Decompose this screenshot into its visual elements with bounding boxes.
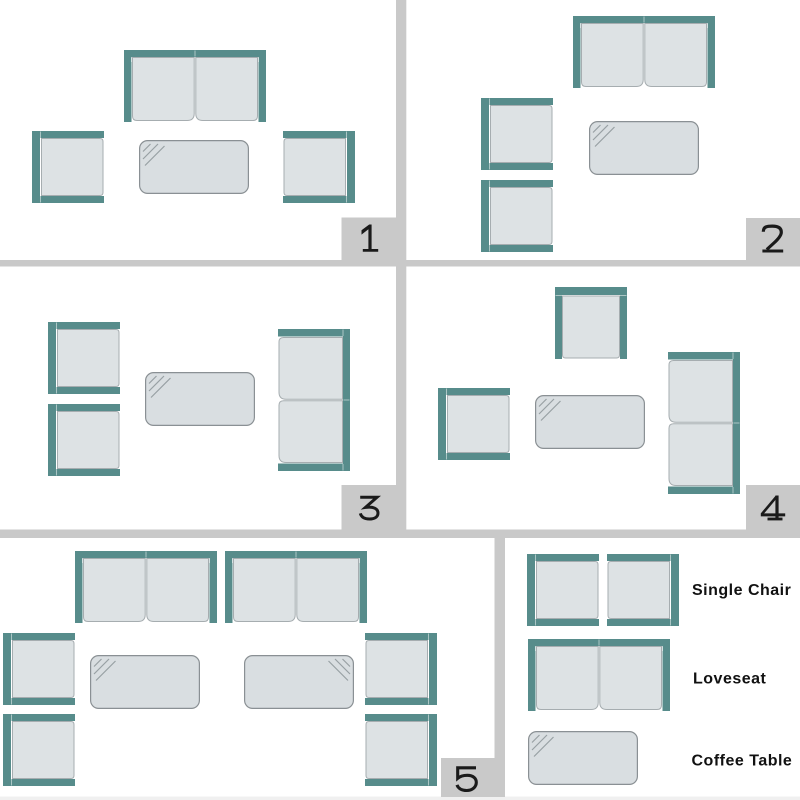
svg-text:Coffee Table: Coffee Table: [692, 753, 793, 770]
svg-text:Single Chair: Single Chair: [692, 582, 791, 599]
svg-text:Loveseat: Loveseat: [693, 670, 767, 687]
